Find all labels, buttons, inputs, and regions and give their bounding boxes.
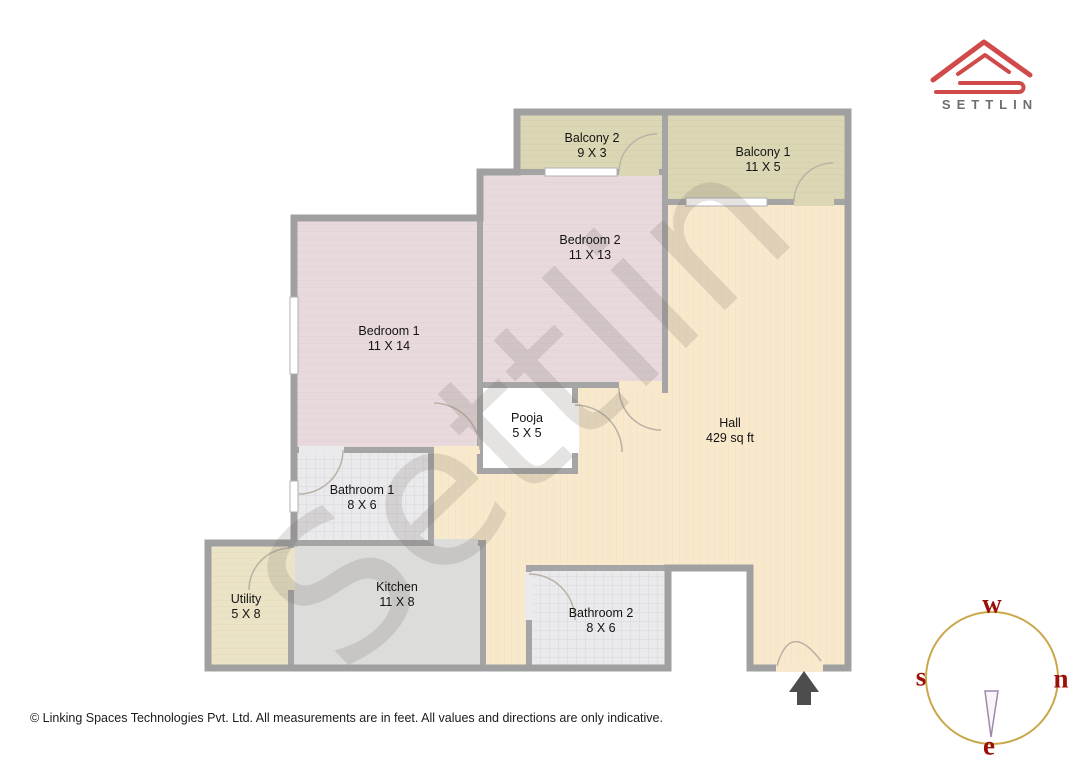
room-name: Hall [706,416,754,431]
room-dims: 9 X 3 [565,146,620,161]
compass-east-label: e [983,731,995,762]
room-dims: 11 X 14 [358,339,419,354]
room-dims: 5 X 5 [511,426,543,441]
room-label-bathroom1: Bathroom 1 8 X 6 [330,483,395,513]
room-dims: 11 X 8 [376,595,418,610]
room-label-balcony1: Balcony 1 11 X 5 [736,145,791,175]
room-label-balcony2: Balcony 2 9 X 3 [565,131,620,161]
brand-wordmark: SETTLIN [942,97,1038,112]
room-name: Bathroom 1 [330,483,395,498]
room-name: Utility [231,592,262,607]
room-label-pooja: Pooja 5 X 5 [511,411,543,441]
room-name: Bathroom 2 [569,606,634,621]
room-label-bedroom2: Bedroom 2 11 X 13 [559,233,620,263]
room-dims: 8 X 6 [569,621,634,636]
room-name: Balcony 2 [565,131,620,146]
room-name: Kitchen [376,580,418,595]
copyright-disclaimer: © Linking Spaces Technologies Pvt. Ltd. … [30,711,663,725]
room-dims: 11 X 5 [736,160,791,175]
room-label-utility: Utility 5 X 8 [231,592,262,622]
bedroom2-floor [480,172,665,388]
floor-plan-page: Settlin Balcony 2 9 X 3 Balcony 1 11 X 5… [0,0,1080,764]
room-label-kitchen: Kitchen 11 X 8 [376,580,418,610]
room-name: Balcony 1 [736,145,791,160]
floor-plan-drawing [0,0,1080,764]
room-dims: 5 X 8 [231,607,262,622]
entrance-arrow-icon [789,671,819,705]
compass-west-label: w [982,589,1002,620]
logo-roof-icon [933,42,1030,92]
compass-south-label: s [916,662,927,693]
room-label-bathroom2: Bathroom 2 8 X 6 [569,606,634,636]
room-dims: 429 sq ft [706,431,754,446]
room-label-hall: Hall 429 sq ft [706,416,754,446]
room-name: Bedroom 2 [559,233,620,248]
room-name: Bedroom 1 [358,324,419,339]
room-label-bedroom1: Bedroom 1 11 X 14 [358,324,419,354]
room-dims: 11 X 13 [559,248,620,263]
room-name: Pooja [511,411,543,426]
compass-north-label: n [1053,664,1068,695]
room-dims: 8 X 6 [330,498,395,513]
